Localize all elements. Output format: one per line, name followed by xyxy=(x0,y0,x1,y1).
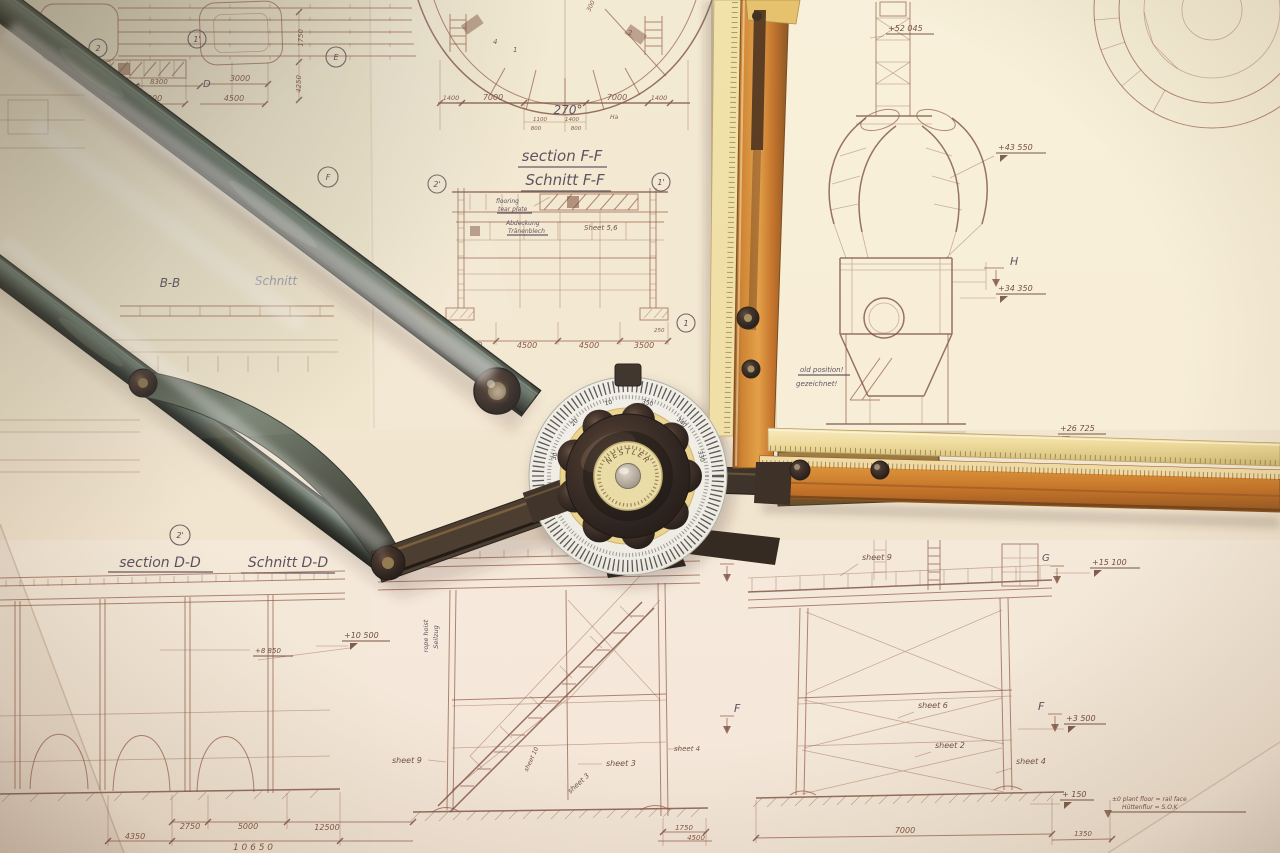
dim-4500-c: 4500 xyxy=(687,834,705,842)
dim-7000-b: 7000 xyxy=(607,93,627,102)
elev-26725: +26 725 xyxy=(1060,424,1095,433)
title-section-dd-de: Schnitt D-D xyxy=(248,555,328,571)
dim-800-a: 800 xyxy=(531,126,542,132)
dim-4500-b: 4500 xyxy=(579,341,599,350)
title-section-ff-de: Schnitt F-F xyxy=(525,171,605,189)
note-ha: Ha xyxy=(610,114,619,121)
elev-52045: +52 045 xyxy=(888,24,923,33)
center-button xyxy=(616,464,641,489)
marker-h: H xyxy=(1010,255,1018,268)
title-section-ff-en: section F-F xyxy=(522,147,603,165)
drafting-board-photo: C 8300 D 3000 7000 4500 1750 4250 2 1' E… xyxy=(0,0,1280,853)
dim-7000-br: 7000 xyxy=(895,826,915,835)
note-angle-270: 270° xyxy=(554,103,583,117)
sheet-4-right: sheet 4 xyxy=(1016,757,1046,766)
dim-1400-r: 1400 xyxy=(651,94,668,102)
dim-1100: 1100 xyxy=(533,117,547,123)
dim-1350-br: 1350 xyxy=(1074,830,1092,838)
note-abdeckung-1: Abdeckung xyxy=(505,220,540,227)
sheet-ref-56: Sheet 5,6 xyxy=(584,224,618,232)
sheet-3-center-a: sheet 3 xyxy=(606,759,636,768)
svg-text:1': 1' xyxy=(657,178,664,187)
sheet-2-right: sheet 2 xyxy=(935,741,965,750)
dim-250-b: 250 xyxy=(654,328,665,334)
dim-2750: 2750 xyxy=(180,822,200,831)
note-old-position-de: gezeichnet! xyxy=(796,380,837,388)
note-flooring-2: tear plate xyxy=(498,206,528,213)
elev-3500: +3 500 xyxy=(1066,714,1096,723)
marker-f-left: F xyxy=(734,702,741,715)
dome-mark-4: 4 xyxy=(493,38,497,46)
elev-15100: +15 100 xyxy=(1092,558,1127,567)
marker-g-right: G xyxy=(1042,553,1050,564)
note-old-position-en: old position! xyxy=(800,366,844,374)
dim-4350: 4350 xyxy=(125,832,145,841)
elev-150: + 150 xyxy=(1062,790,1087,799)
sheet-9-right: sheet 9 xyxy=(862,553,892,562)
sheet-9-center: sheet 9 xyxy=(392,756,422,765)
svg-text:2': 2' xyxy=(176,531,183,540)
dim-12500: 12500 xyxy=(314,823,339,832)
dim-1750-c: 1750 xyxy=(675,824,693,832)
dim-1400-c: 1400 xyxy=(565,117,579,123)
note-plant-floor-de: Hüttenflur = S.O.K xyxy=(1122,804,1179,811)
note-abdeckung-2: Tränenblech xyxy=(508,228,545,235)
dim-10650: 1 0 6 5 0 xyxy=(233,843,273,853)
dome-mark-2: 2 xyxy=(628,29,633,37)
svg-text:1: 1 xyxy=(683,319,688,328)
elev-34350: +34 350 xyxy=(998,284,1033,293)
dim-3500-b: 3500 xyxy=(634,341,654,350)
dim-7000-a: 7000 xyxy=(483,93,503,102)
dim-5000: 5000 xyxy=(238,822,258,831)
dim-800-b: 800 xyxy=(571,126,582,132)
elev-10500: +10 500 xyxy=(344,631,379,640)
note-rope-hoist-en: rope hoist xyxy=(422,619,430,652)
title-section-dd-en: section D-D xyxy=(119,555,201,571)
elev-8850: +8 850 xyxy=(255,647,281,655)
note-rope-hoist-de: Seilzug xyxy=(432,625,440,648)
dome-mark-1: 1 xyxy=(513,46,517,54)
note-flooring-1: flooring xyxy=(496,198,519,205)
pivot-knob-lower xyxy=(371,546,405,580)
index-tab xyxy=(615,364,641,386)
photo-canvas: C 8300 D 3000 7000 4500 1750 4250 2 1' E… xyxy=(0,0,1280,853)
marker-f-right: F xyxy=(1038,700,1045,713)
sheet-6-right: sheet 6 xyxy=(918,701,948,710)
note-plant-floor-en: ±0 plant floor = rail face xyxy=(1112,796,1187,803)
elev-43550: +43 550 xyxy=(998,143,1033,152)
